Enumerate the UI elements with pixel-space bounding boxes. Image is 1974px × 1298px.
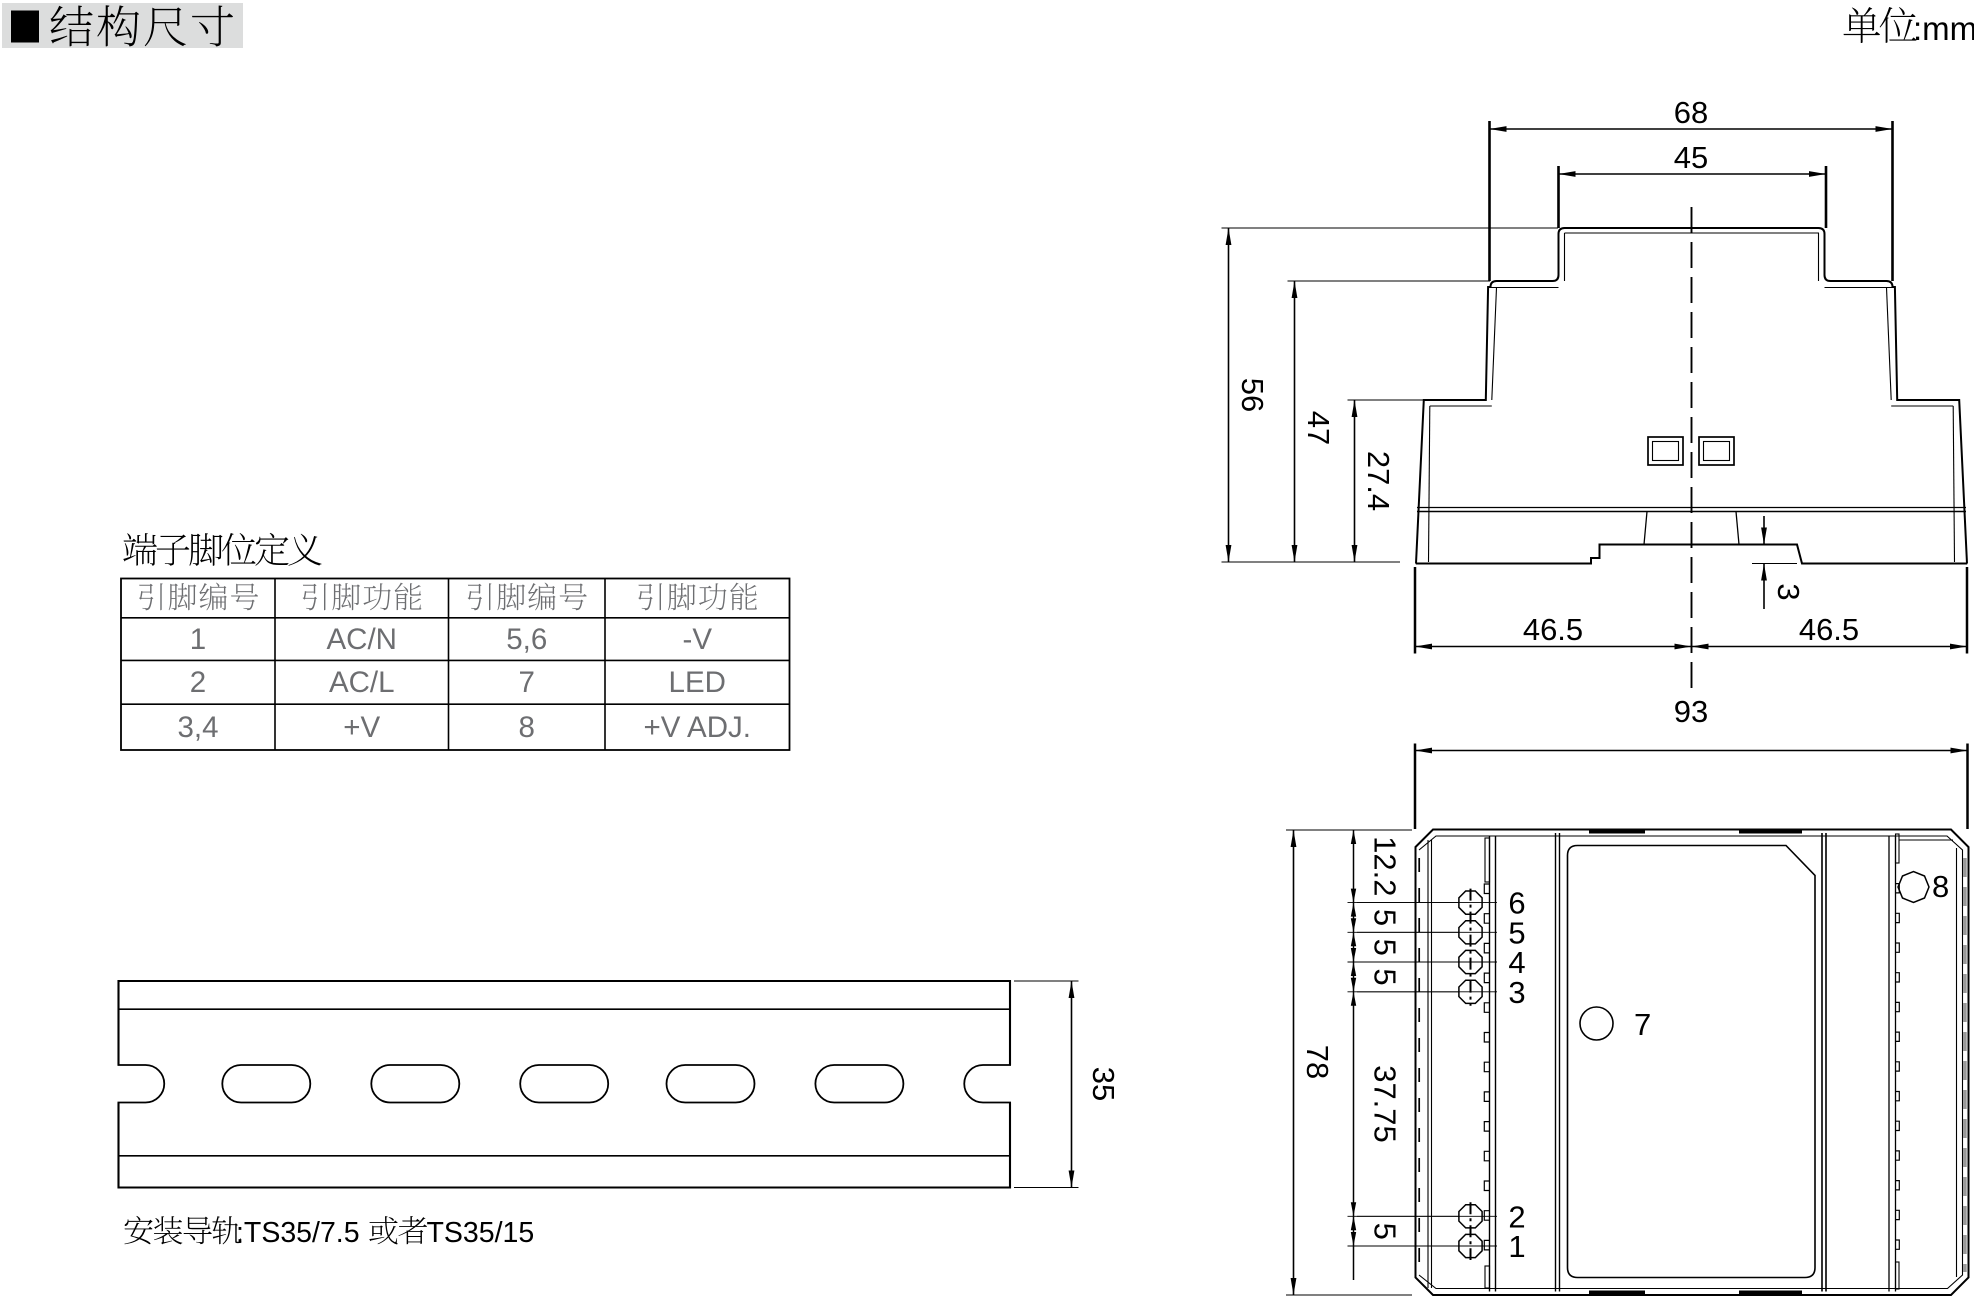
svg-text:56: 56	[1235, 378, 1270, 412]
svg-text:5,6: 5,6	[506, 623, 547, 656]
svg-text:5: 5	[1368, 939, 1403, 956]
svg-text:-V: -V	[683, 623, 713, 656]
svg-text:1: 1	[190, 623, 206, 656]
svg-text:5: 5	[1368, 968, 1403, 985]
svg-text:3: 3	[1771, 583, 1806, 600]
svg-text:35: 35	[1086, 1067, 1121, 1101]
svg-text:+V: +V	[343, 711, 380, 744]
svg-text:93: 93	[1674, 694, 1708, 729]
svg-text::TS35/7.5: :TS35/7.5	[236, 1217, 360, 1249]
svg-text:AC/L: AC/L	[329, 666, 395, 699]
svg-text:+V ADJ.: +V ADJ.	[644, 711, 751, 744]
svg-text:TS35/15: TS35/15	[427, 1217, 535, 1249]
svg-text:68: 68	[1674, 95, 1708, 130]
svg-text:LED: LED	[669, 666, 726, 699]
svg-text:8: 8	[1932, 869, 1949, 904]
svg-text:47: 47	[1301, 411, 1336, 445]
svg-text:37.75: 37.75	[1368, 1065, 1403, 1143]
svg-text:45: 45	[1674, 140, 1708, 175]
svg-text:2: 2	[190, 666, 206, 699]
svg-text:1: 1	[1508, 1229, 1525, 1264]
svg-text:12.2: 12.2	[1368, 836, 1403, 896]
svg-text:AC/N: AC/N	[327, 623, 397, 656]
svg-text:7: 7	[519, 666, 535, 699]
svg-text:78: 78	[1300, 1045, 1335, 1079]
svg-text:8: 8	[519, 711, 535, 744]
svg-text:7: 7	[1634, 1007, 1651, 1042]
svg-text:46.5: 46.5	[1799, 612, 1859, 647]
svg-text:27.4: 27.4	[1361, 451, 1396, 511]
svg-text:5: 5	[1368, 909, 1403, 926]
svg-text:5: 5	[1368, 1223, 1403, 1240]
svg-text::mm: :mm	[1913, 10, 1974, 47]
svg-text:3: 3	[1508, 975, 1525, 1010]
svg-text:3,4: 3,4	[177, 711, 218, 744]
svg-text:46.5: 46.5	[1523, 612, 1583, 647]
